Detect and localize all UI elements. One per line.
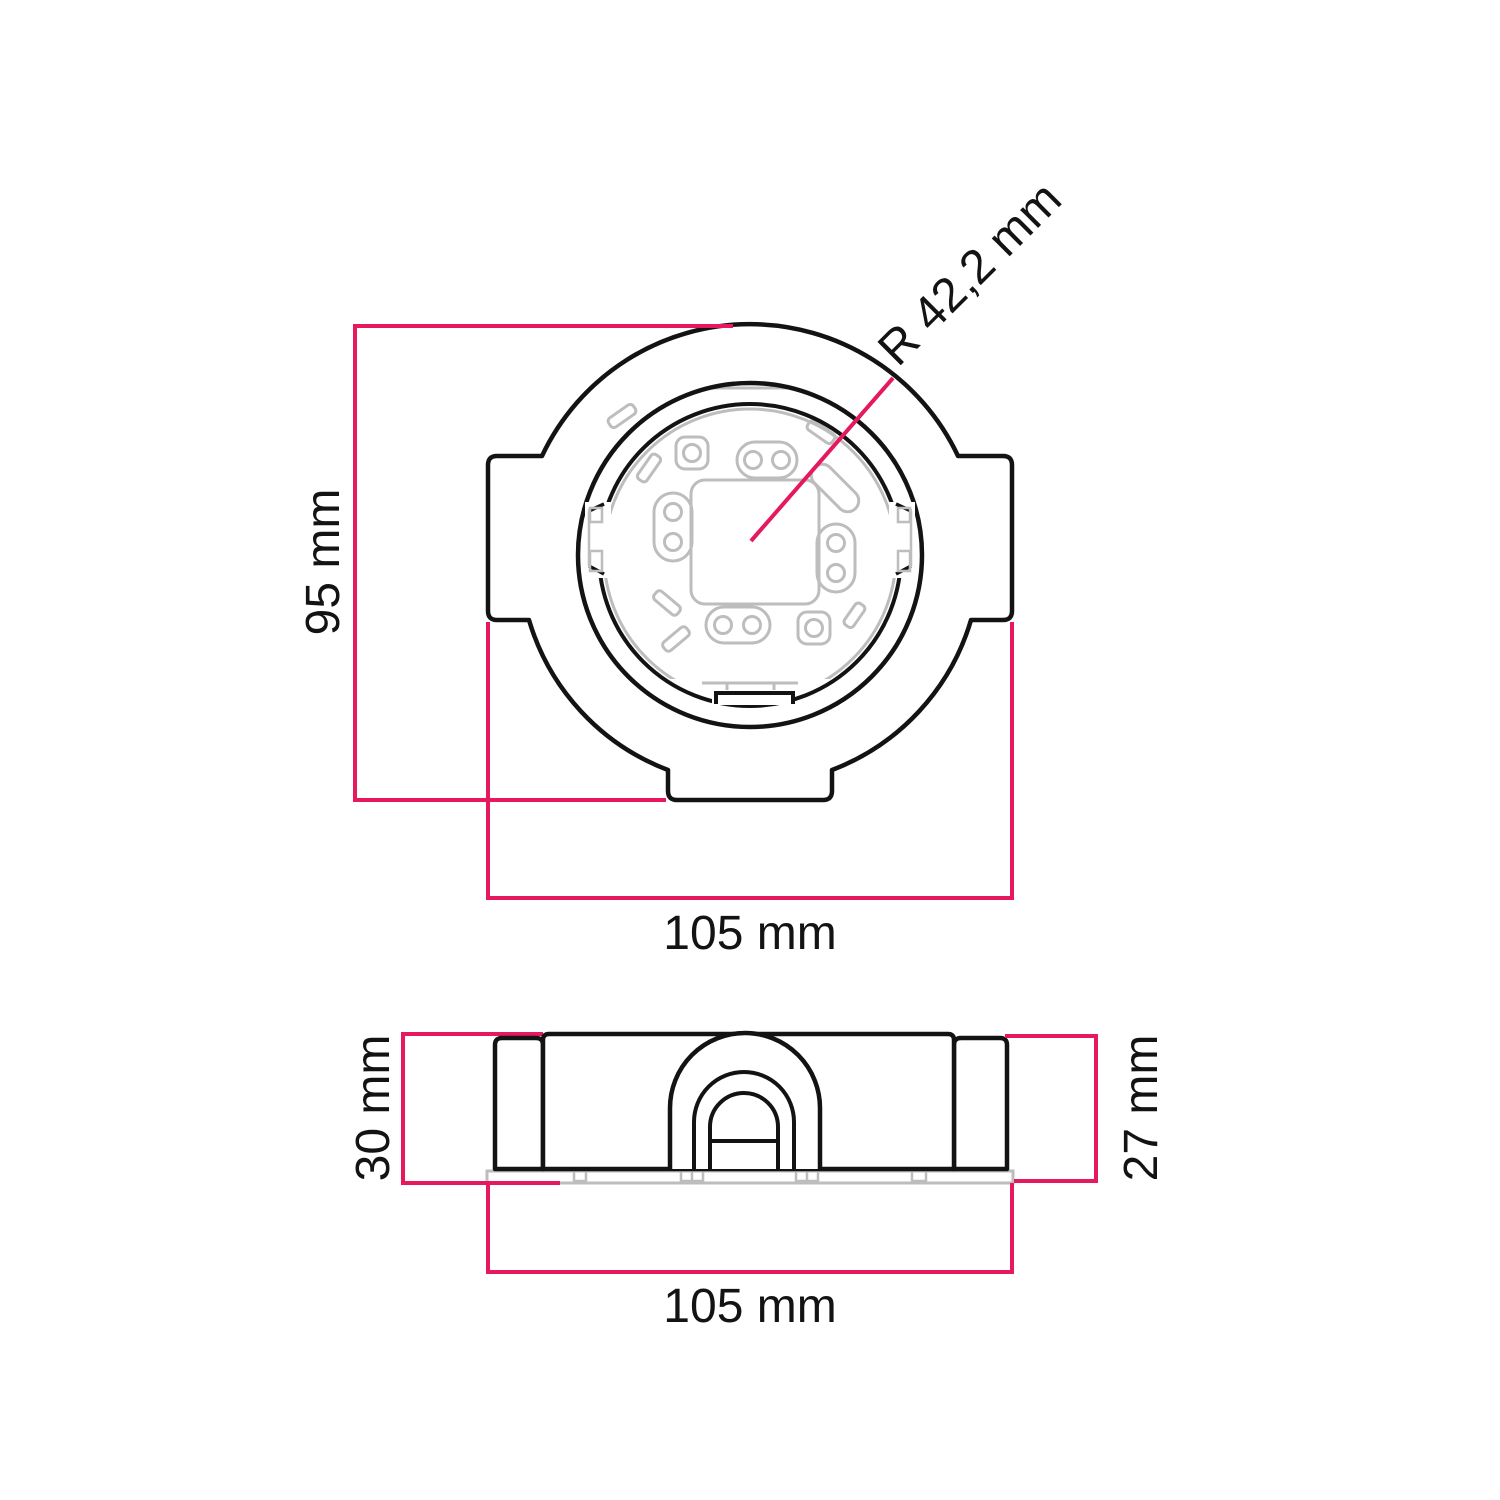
- dim-radius-label: R 42,2 mm: [868, 172, 1071, 375]
- ring-notch-left: [585, 502, 611, 578]
- ring-notch-right: [889, 502, 915, 578]
- side-view: 30 mm 27 mm 105 mm: [347, 1033, 1168, 1333]
- dim-95mm-label: 95 mm: [297, 489, 350, 636]
- dim-105mm-top-label: 105 mm: [663, 907, 836, 960]
- side-tab-right: [954, 1038, 1007, 1169]
- technical-drawing-page: 95 mm 105 mm R 42,2 mm: [0, 0, 1500, 1500]
- dim-105mm-bottom-label: 105 mm: [663, 1280, 836, 1333]
- dim-27mm-label: 27 mm: [1115, 1035, 1168, 1182]
- dim-30mm-label: 30 mm: [347, 1035, 400, 1182]
- dim-line-27mm: [1005, 1036, 1096, 1181]
- technical-drawing-canvas: 95 mm 105 mm R 42,2 mm: [0, 0, 1500, 1500]
- ring-notch-bottom: [712, 690, 794, 705]
- side-tab-left: [495, 1038, 543, 1169]
- side-view-base-plate: [487, 1171, 1013, 1183]
- side-view-body: [495, 1033, 1007, 1169]
- dim-line-105mm-bottom: [488, 1183, 1012, 1272]
- cable-arch-inner: [710, 1093, 778, 1169]
- top-view: 95 mm 105 mm R 42,2 mm: [297, 172, 1072, 960]
